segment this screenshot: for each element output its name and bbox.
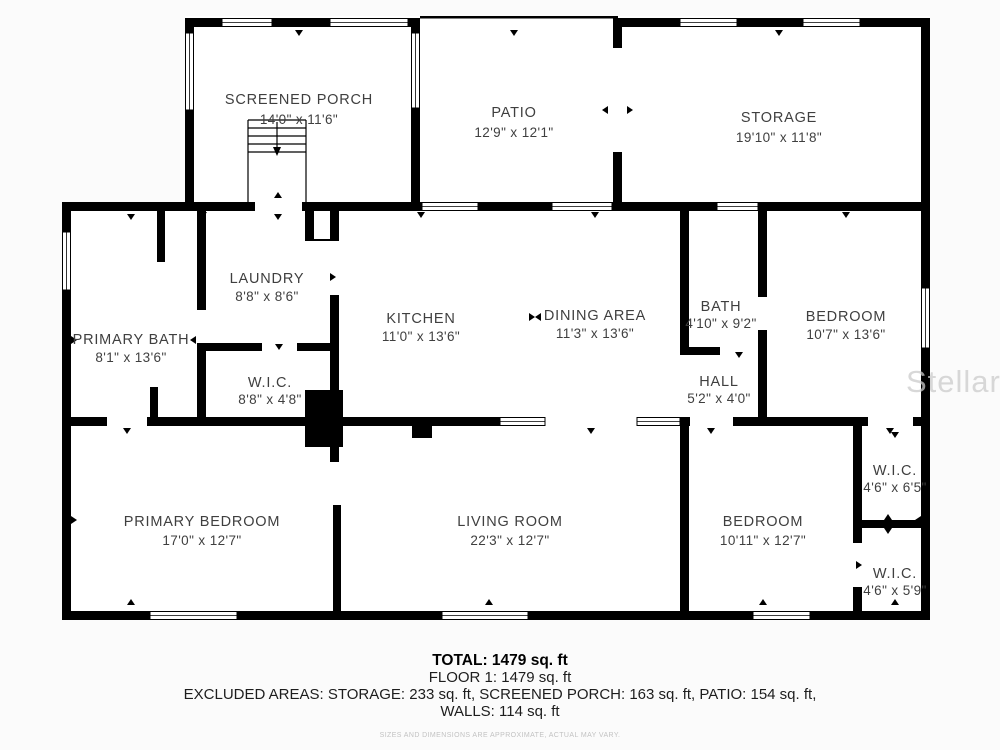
- room-dims-hall: 5'2" x 4'0": [687, 391, 750, 406]
- room-dims-living-room: 22'3" x 12'7": [470, 533, 549, 548]
- room-label-screened-porch: SCREENED PORCH: [225, 92, 373, 108]
- room-dims-wic-laundry: 8'8" x 4'8": [238, 392, 301, 407]
- chimney: [305, 390, 343, 447]
- window: [412, 33, 420, 108]
- room-label-laundry: LAUNDRY: [230, 271, 305, 287]
- window: [422, 203, 478, 211]
- window: [63, 232, 71, 290]
- window: [803, 19, 860, 27]
- window: [753, 612, 810, 620]
- room-label-wic-top: W.I.C.: [873, 463, 917, 479]
- total-area-text: TOTAL: 1479 sq. ft: [0, 653, 1000, 669]
- room-label-dining-area: DINING AREA: [544, 308, 646, 324]
- room-label-bath: BATH: [701, 299, 742, 315]
- room-dims-wic-top: 4'6" x 6'5": [863, 480, 926, 495]
- room-label-storage: STORAGE: [741, 110, 817, 126]
- floor1-area-text: FLOOR 1: 1479 sq. ft: [0, 670, 1000, 686]
- window: [552, 203, 612, 211]
- room-label-patio: PATIO: [491, 105, 536, 121]
- room-label-primary-bath: PRIMARY BATH: [73, 332, 190, 348]
- room-dims-bedroom-right: 10'7" x 13'6": [806, 327, 885, 342]
- window: [500, 418, 545, 426]
- room-label-bedroom-right: BEDROOM: [806, 309, 887, 325]
- area-summary: TOTAL: 1479 sq. ft FLOOR 1: 1479 sq. ft …: [0, 652, 1000, 739]
- window: [717, 203, 758, 211]
- room-label-wic-laundry: W.I.C.: [248, 375, 292, 391]
- window: [330, 19, 408, 27]
- disclaimer-text: SIZES AND DIMENSIONS ARE APPROXIMATE, AC…: [0, 732, 1000, 739]
- room-dims-bath: 4'10" x 9'2": [685, 316, 756, 331]
- room-label-kitchen: KITCHEN: [386, 311, 455, 327]
- room-dims-primary-bath: 8'1" x 13'6": [95, 350, 166, 365]
- window: [442, 612, 528, 620]
- fireplace-box: [412, 424, 432, 438]
- room-label-bedroom-bottom: BEDROOM: [723, 514, 804, 530]
- room-dims-primary-bedroom: 17'0" x 12'7": [162, 533, 241, 548]
- room-label-hall: HALL: [699, 374, 738, 390]
- window: [922, 288, 930, 348]
- room-dims-dining-area: 11'3" x 13'6": [556, 326, 634, 341]
- room-dims-wic-bottom: 4'6" x 5'9": [863, 583, 926, 598]
- room-dims-kitchen: 11'0" x 13'6": [382, 329, 460, 344]
- room-dims-bedroom-bottom: 10'11" x 12'7": [720, 533, 806, 548]
- room-label-wic-bottom: W.I.C.: [873, 566, 917, 582]
- excluded-areas-text: EXCLUDED AREAS: STORAGE: 233 sq. ft, SCR…: [0, 687, 1000, 703]
- window: [150, 612, 237, 620]
- stellar-mls-watermark: StellarMLS: [906, 364, 1000, 399]
- window: [186, 33, 194, 110]
- room-dims-patio: 12'9" x 12'1": [474, 125, 553, 140]
- floorplan-page: SCREENED PORCH 14'0" x 11'6" PATIO 12'9"…: [0, 0, 1000, 750]
- walls-area-text: WALLS: 114 sq. ft: [0, 704, 1000, 720]
- window: [222, 19, 272, 27]
- room-label-living-room: LIVING ROOM: [457, 514, 562, 530]
- window: [680, 19, 737, 27]
- window: [637, 418, 680, 426]
- room-dims-screened-porch: 14'0" x 11'6": [260, 112, 338, 127]
- floorplan-svg: SCREENED PORCH 14'0" x 11'6" PATIO 12'9"…: [0, 0, 1000, 750]
- room-label-primary-bedroom: PRIMARY BEDROOM: [124, 514, 281, 530]
- room-dims-laundry: 8'8" x 8'6": [235, 289, 298, 304]
- room-dims-storage: 19'10" x 11'8": [736, 130, 822, 145]
